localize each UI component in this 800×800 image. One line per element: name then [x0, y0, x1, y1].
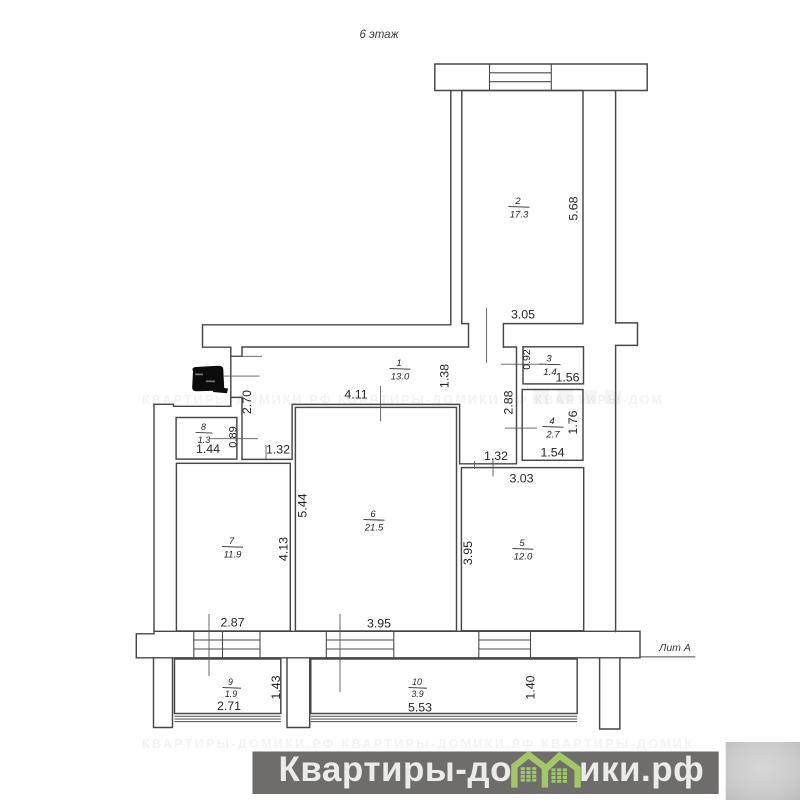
svg-text:Лит А: Лит А — [658, 642, 691, 654]
svg-text:11.9: 11.9 — [224, 550, 243, 561]
svg-text:1: 1 — [396, 358, 401, 369]
svg-text:2.87: 2.87 — [220, 616, 244, 630]
svg-text:4.13: 4.13 — [276, 537, 290, 561]
svg-text:13.0: 13.0 — [391, 372, 410, 383]
svg-text:3.9: 3.9 — [411, 689, 423, 699]
svg-text:1.32: 1.32 — [484, 449, 508, 463]
svg-text:1.76: 1.76 — [566, 410, 580, 434]
svg-text:1.54: 1.54 — [540, 445, 564, 459]
svg-text:ики.рф: ики.рф — [579, 750, 704, 789]
svg-text:17.3: 17.3 — [510, 210, 529, 221]
svg-text:10: 10 — [412, 677, 422, 687]
svg-text:КВАРТИРЫ-ДОМИКИ.РФ КВАРТИРЫ-ДО: КВАРТИРЫ-ДОМИКИ.РФ КВАРТИРЫ-ДОМИКИ.РФ КВ… — [142, 737, 692, 751]
svg-text:7: 7 — [229, 536, 235, 547]
svg-text:3.95: 3.95 — [461, 541, 475, 565]
svg-text:5.53: 5.53 — [408, 700, 432, 714]
svg-text:1.40: 1.40 — [523, 675, 537, 699]
svg-text:1.43: 1.43 — [269, 675, 283, 699]
svg-text:5.68: 5.68 — [566, 196, 580, 220]
svg-text:4: 4 — [549, 416, 554, 427]
svg-text:1.44: 1.44 — [196, 442, 220, 456]
svg-text:6: 6 — [370, 509, 376, 520]
svg-text:3.95: 3.95 — [367, 616, 391, 630]
svg-text:2: 2 — [514, 196, 521, 207]
svg-text:21.5: 21.5 — [364, 523, 384, 534]
svg-text:Квартиры-до: Квартиры-до — [279, 750, 512, 789]
svg-text:8: 8 — [201, 422, 206, 432]
svg-text:5: 5 — [519, 538, 525, 549]
svg-text:3.05: 3.05 — [511, 308, 535, 322]
svg-text:2.7: 2.7 — [545, 430, 560, 441]
svg-text:9: 9 — [228, 677, 233, 687]
svg-text:1.9: 1.9 — [225, 689, 237, 699]
svg-text:6 этаж: 6 этаж — [359, 29, 399, 41]
svg-text:3: 3 — [546, 354, 552, 365]
svg-text:3.03: 3.03 — [509, 471, 533, 485]
svg-text:1.38: 1.38 — [437, 364, 451, 388]
svg-text:1.56: 1.56 — [555, 371, 579, 385]
svg-text:0.89: 0.89 — [227, 426, 239, 447]
svg-text:2.71: 2.71 — [217, 699, 241, 713]
svg-text:0.92: 0.92 — [521, 349, 533, 370]
svg-text:12.0: 12.0 — [514, 552, 533, 563]
svg-text:5.44: 5.44 — [295, 493, 309, 517]
svg-text:1.32: 1.32 — [266, 443, 290, 457]
